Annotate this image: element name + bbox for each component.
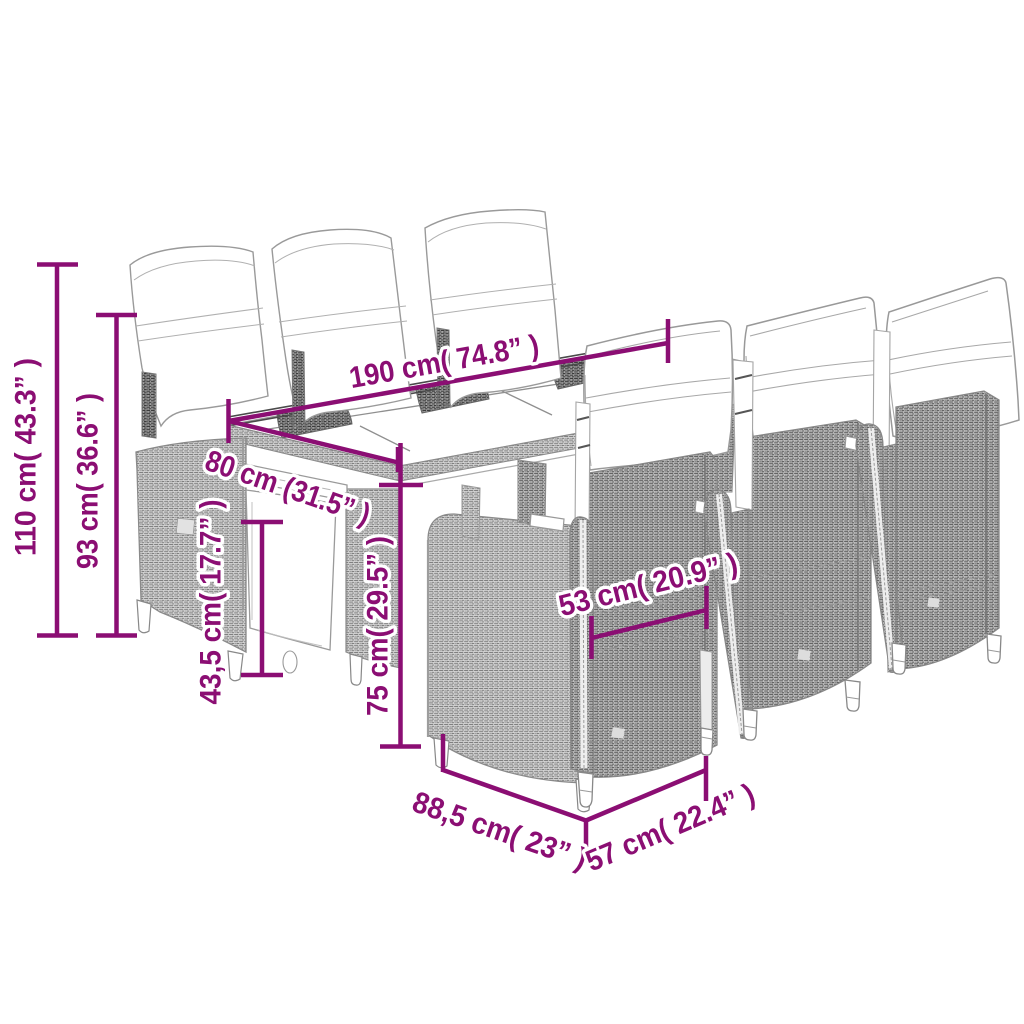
svg-text:75 cm( 29.5” ): 75 cm( 29.5” ) xyxy=(362,536,395,716)
svg-text:110 cm( 43.3” ): 110 cm( 43.3” ) xyxy=(10,358,43,556)
svg-text:43,5 cm( 17.7” ): 43,5 cm( 17.7” ) xyxy=(195,500,228,705)
svg-text:93 cm( 36.6” ): 93 cm( 36.6” ) xyxy=(72,393,105,569)
